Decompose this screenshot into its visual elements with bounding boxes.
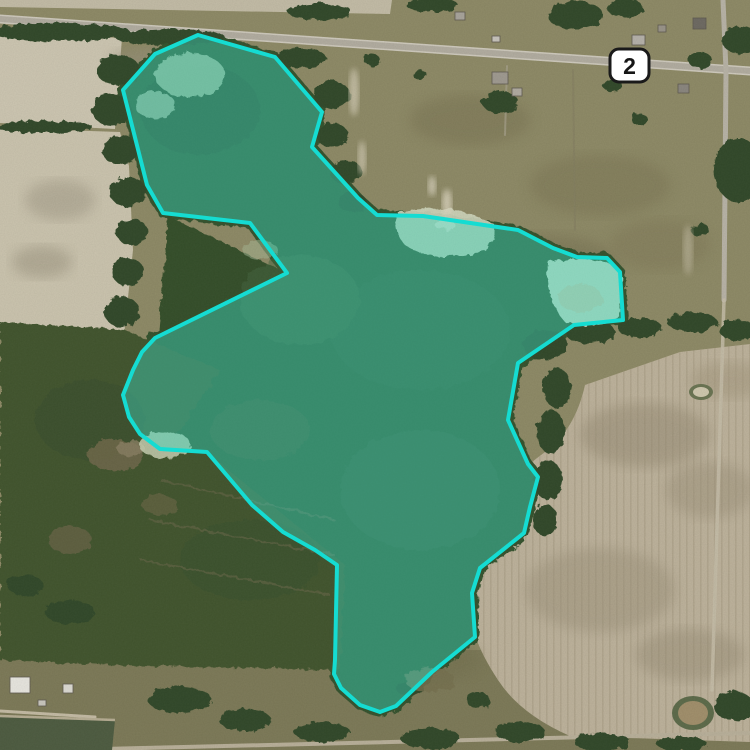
map-viewport[interactable]: 2: [0, 0, 750, 750]
route-2-shield: 2: [610, 49, 649, 82]
satellite-map[interactable]: 2: [0, 0, 750, 750]
route-number: 2: [623, 53, 636, 79]
